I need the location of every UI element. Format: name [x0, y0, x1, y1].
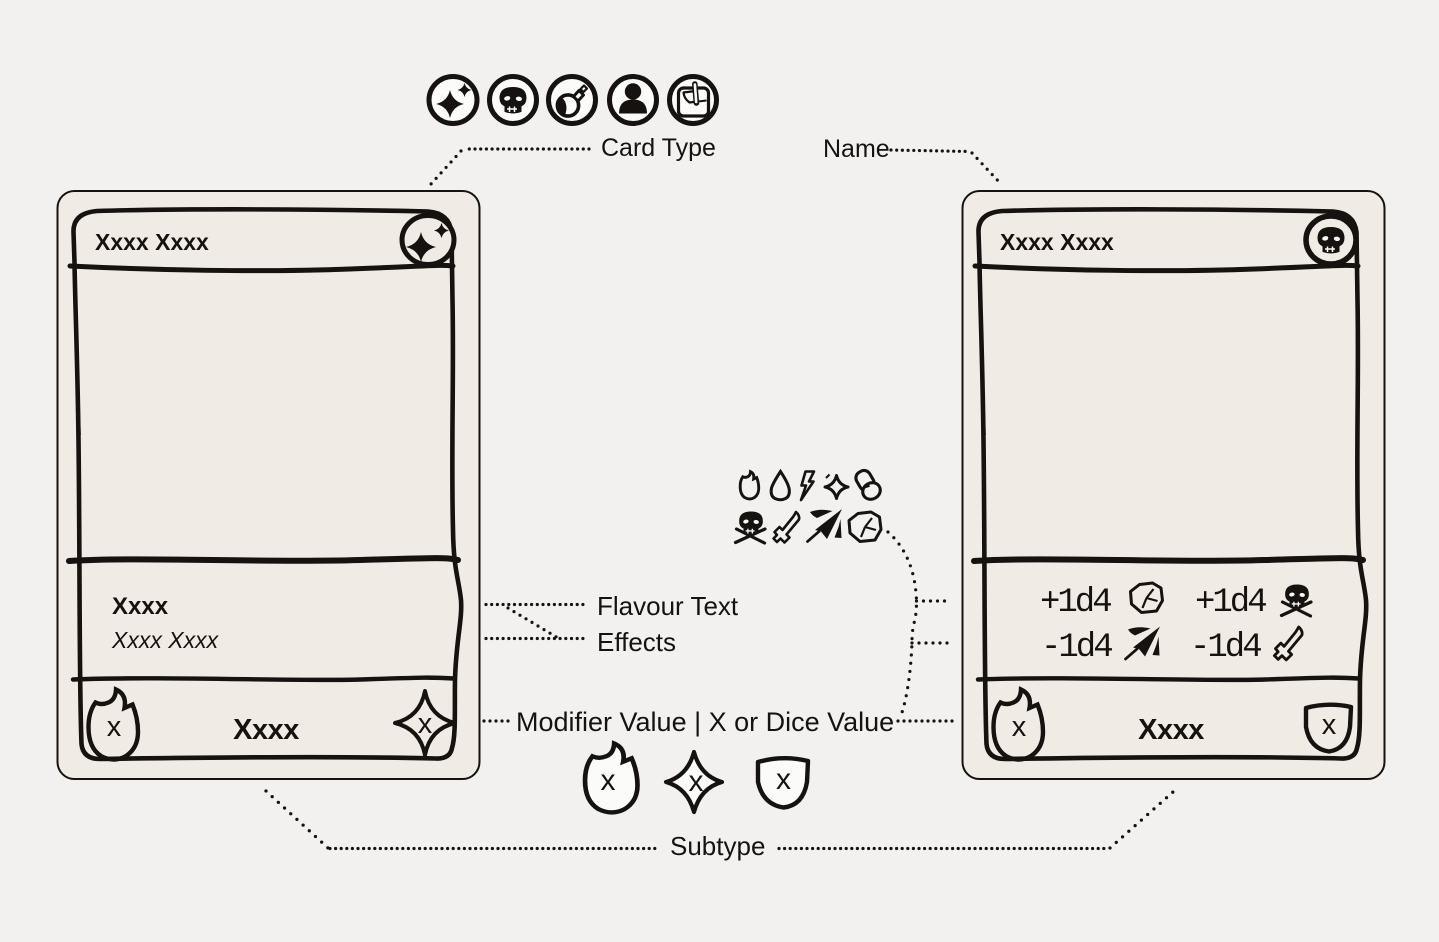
- svg-text:Card Type: Card Type: [601, 134, 716, 162]
- svg-text:Effects: Effects: [597, 627, 676, 657]
- svg-text:Xxxx: Xxxx: [112, 593, 169, 620]
- svg-text:Xxxx: Xxxx: [1138, 714, 1204, 746]
- svg-text:Name: Name: [823, 135, 890, 163]
- svg-text:Xxxx Xxxx: Xxxx Xxxx: [1000, 229, 1114, 255]
- svg-text:Modifier Value | X or Dice Val: Modifier Value | X or Dice Value: [516, 707, 894, 737]
- svg-text:+1d4: +1d4: [1195, 584, 1266, 622]
- svg-text:x: x: [1012, 711, 1027, 743]
- svg-text:x: x: [1322, 709, 1337, 741]
- svg-text:x: x: [601, 764, 616, 797]
- svg-text:Flavour Text: Flavour Text: [597, 591, 739, 621]
- svg-text:Xxxx Xxxx: Xxxx Xxxx: [111, 627, 220, 653]
- svg-text:+1d4: +1d4: [1040, 584, 1111, 622]
- svg-text:x: x: [776, 763, 791, 796]
- svg-text:x: x: [689, 765, 704, 798]
- svg-text:Subtype: Subtype: [670, 831, 765, 861]
- svg-text:-1d4: -1d4: [1041, 629, 1112, 667]
- svg-text:x: x: [107, 711, 122, 743]
- svg-text:Xxxx: Xxxx: [233, 714, 299, 746]
- svg-text:Xxxx Xxxx: Xxxx Xxxx: [95, 229, 209, 255]
- svg-text:x: x: [418, 708, 433, 740]
- svg-text:-1d4: -1d4: [1190, 629, 1261, 667]
